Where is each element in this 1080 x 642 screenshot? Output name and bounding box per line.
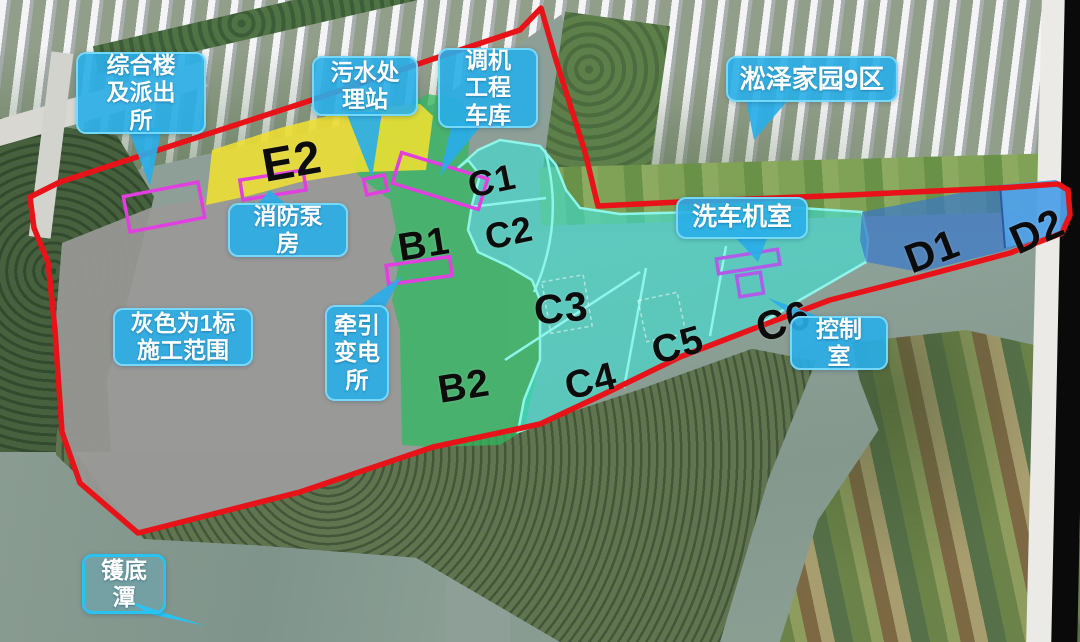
callout-car-wash-room: 洗车机室 xyxy=(676,197,808,239)
callout-line: 牵引 xyxy=(334,312,380,339)
zone-label-e2: E2 xyxy=(258,128,326,192)
callout-control-room: 控制 室 xyxy=(790,316,888,370)
callout-songze-homeland: 淞泽家园9区 xyxy=(726,56,898,102)
callout-shunting-garage: 调机 工程 车库 xyxy=(438,48,538,128)
callout-line: 变电 xyxy=(334,339,380,366)
callout-line: 所 xyxy=(130,107,153,134)
callout-huodi-pond: 镬底 潭 xyxy=(82,554,166,614)
callout-line: 污水处 xyxy=(331,59,400,86)
callout-fire-pump-house: 消防泵 房 xyxy=(228,203,348,257)
callout-line: 调机 xyxy=(465,47,511,74)
callout-traction-substation: 牵引 变电 所 xyxy=(325,305,389,401)
callout-comprehensive-building: 综合楼 及派出 所 xyxy=(76,52,206,134)
callout-line: 车库 xyxy=(465,102,511,129)
callout-line: 消防泵 xyxy=(254,203,323,230)
site-plan-map: E2 B1 B2 C1 C2 C3 C4 C5 C6 D1 D2 综合楼 及派出… xyxy=(0,0,1080,642)
callout-line: 室 xyxy=(828,343,851,370)
callout-line: 施工范围 xyxy=(137,337,229,364)
callout-line: 灰色为1标 xyxy=(131,310,236,337)
callout-line: 洗车机室 xyxy=(692,203,792,233)
zone-label-c3: C3 xyxy=(532,283,590,335)
callout-line: 潭 xyxy=(113,584,136,611)
callout-line: 镬底 xyxy=(101,557,147,584)
callout-line: 控制 xyxy=(816,316,862,343)
callout-line: 综合楼 xyxy=(107,52,176,79)
callout-line: 及派出 xyxy=(107,79,176,106)
callout-line: 工程 xyxy=(465,74,511,101)
callout-line: 房 xyxy=(277,230,300,257)
callout-gray-scope-note: 灰色为1标 施工范围 xyxy=(113,308,253,366)
zone-label-b1: B1 xyxy=(395,219,453,271)
callout-line: 所 xyxy=(346,367,369,394)
zone-label-b2: B2 xyxy=(435,361,493,413)
callout-line: 淞泽家园9区 xyxy=(740,64,884,95)
callout-sewage-treatment: 污水处 理站 xyxy=(312,56,418,116)
callout-line: 理站 xyxy=(342,86,388,113)
